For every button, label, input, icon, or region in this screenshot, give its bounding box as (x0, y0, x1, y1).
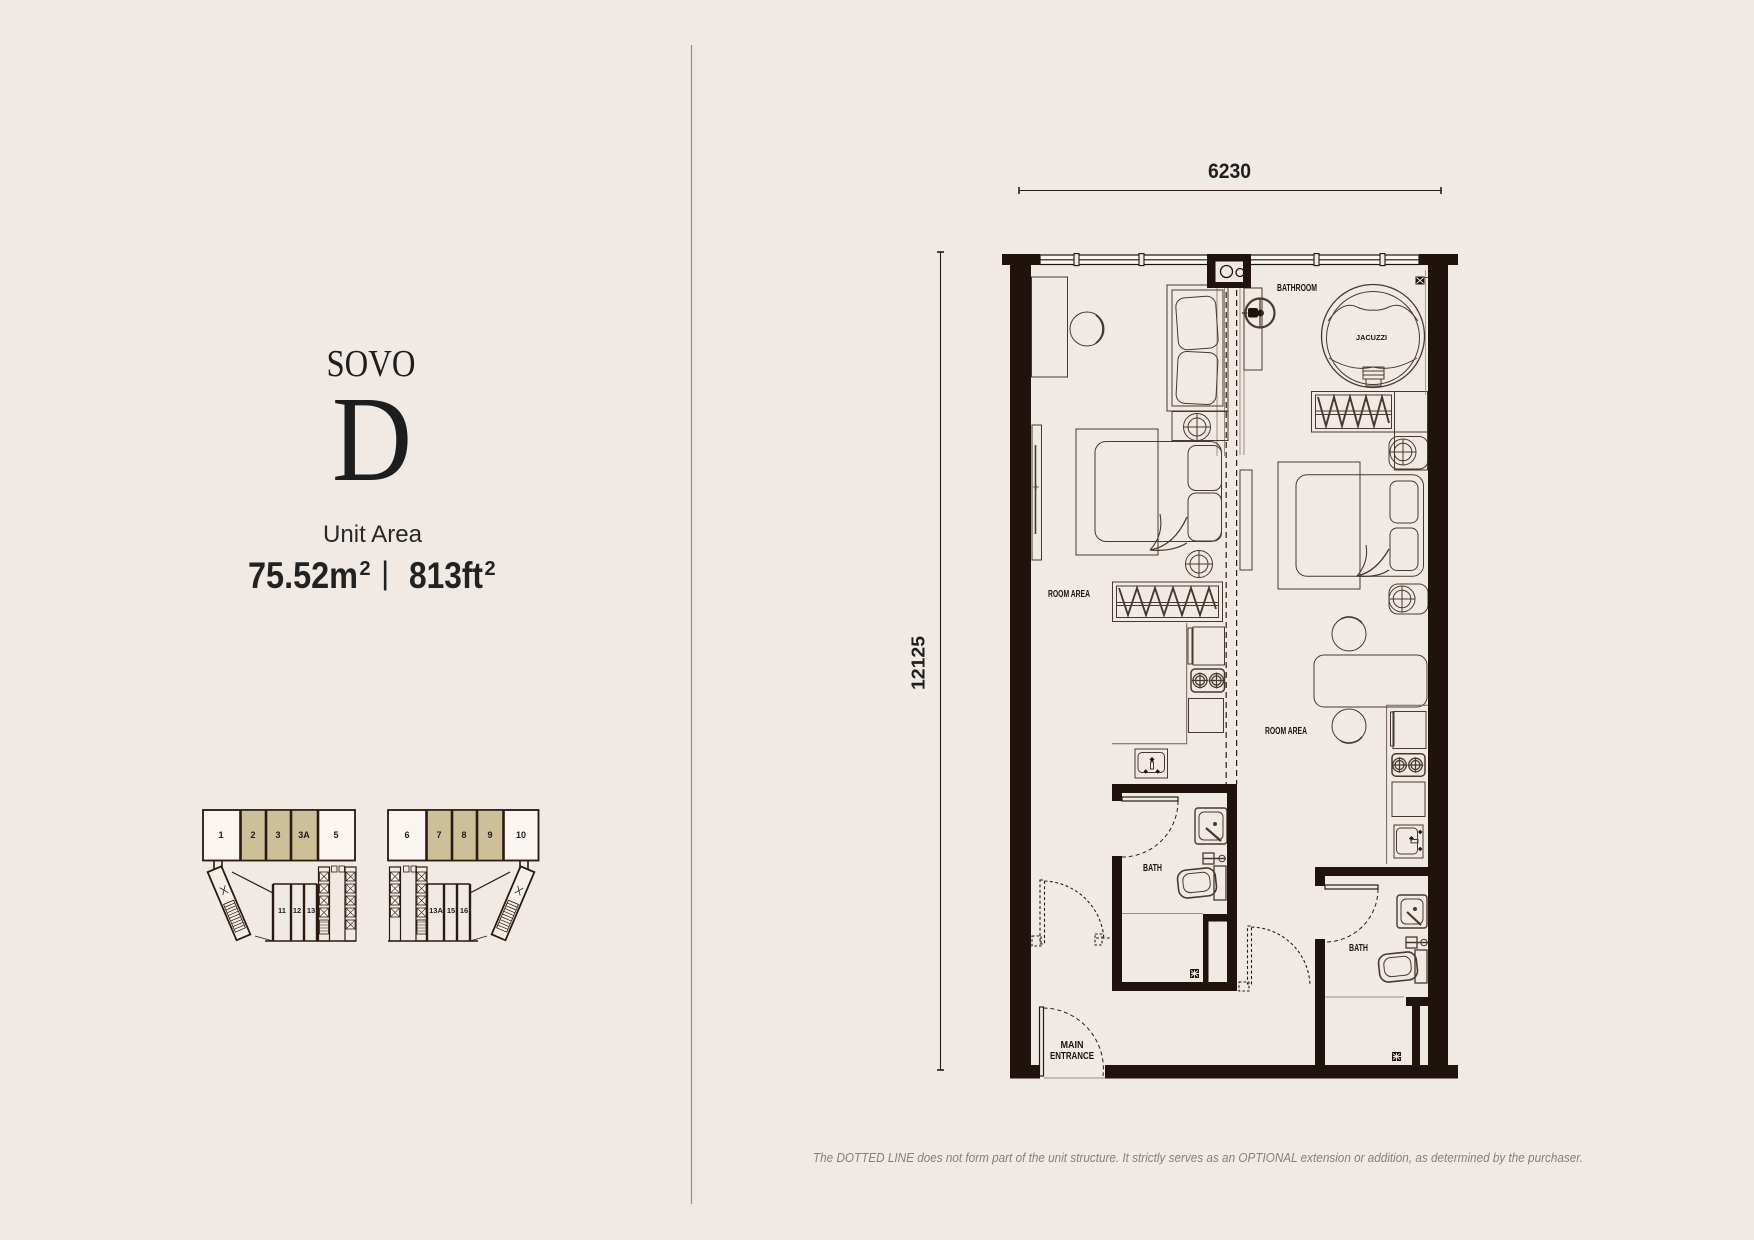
svg-text:12125: 12125 (908, 636, 929, 690)
svg-text:10: 10 (516, 830, 526, 840)
svg-text:13: 13 (307, 906, 315, 915)
svg-text:ROOM AREA: ROOM AREA (1048, 589, 1090, 600)
svg-text:9: 9 (487, 830, 492, 840)
svg-text:5: 5 (333, 830, 338, 840)
svg-text:13A: 13A (429, 906, 443, 915)
svg-text:8: 8 (461, 830, 466, 840)
svg-text:BATHROOM: BATHROOM (1277, 283, 1317, 294)
svg-text:12: 12 (293, 906, 301, 915)
svg-text:MAIN: MAIN (1061, 1040, 1084, 1051)
svg-text:BATH: BATH (1143, 863, 1162, 874)
svg-text:2: 2 (485, 558, 496, 580)
svg-text:BATH: BATH (1349, 943, 1368, 954)
svg-text:1: 1 (218, 830, 223, 840)
svg-text:3: 3 (275, 830, 280, 840)
svg-text:Unit Area: Unit Area (323, 521, 422, 548)
svg-text:2: 2 (360, 558, 371, 580)
svg-text:813ft: 813ft (409, 555, 483, 596)
svg-text:16: 16 (460, 906, 468, 915)
svg-text:2: 2 (250, 830, 255, 840)
svg-text:JACUZZI: JACUZZI (1356, 335, 1387, 342)
svg-text:3A: 3A (298, 830, 310, 840)
svg-text:ROOM AREA: ROOM AREA (1265, 726, 1307, 737)
svg-text:75.52m: 75.52m (248, 555, 358, 596)
svg-text:The DOTTED LINE does not form: The DOTTED LINE does not form part of th… (813, 1150, 1583, 1165)
svg-text:6: 6 (404, 830, 409, 840)
svg-text:ENTRANCE: ENTRANCE (1050, 1051, 1094, 1062)
svg-text:15: 15 (447, 906, 455, 915)
svg-text:7: 7 (436, 830, 441, 840)
svg-text:11: 11 (278, 906, 286, 915)
svg-text:|: | (381, 555, 389, 591)
svg-text:D: D (332, 372, 412, 507)
svg-text:6230: 6230 (1208, 160, 1251, 183)
